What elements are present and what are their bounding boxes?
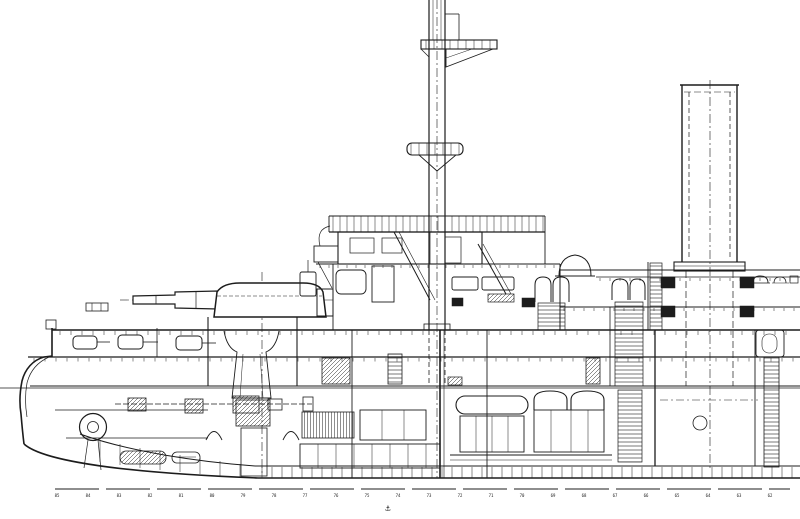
frame-number: 67 bbox=[613, 493, 618, 498]
frame-number: 68 bbox=[582, 493, 587, 498]
blueprint-page: 8584838281807978777675747372717069686766… bbox=[0, 0, 800, 519]
frame-number: 65 bbox=[675, 493, 680, 498]
small-machinery bbox=[448, 377, 462, 385]
coal-scuttle bbox=[661, 277, 675, 288]
frame-number: 66 bbox=[644, 493, 649, 498]
coal-scuttle bbox=[522, 298, 535, 307]
frame-number: 80 bbox=[210, 493, 215, 498]
frame-number: 82 bbox=[148, 493, 153, 498]
frame-number: 62 bbox=[768, 493, 773, 498]
frame-number: 75 bbox=[365, 493, 370, 498]
coal-scuttle bbox=[740, 277, 754, 288]
windlass-gear bbox=[185, 399, 203, 413]
paper-background bbox=[0, 0, 800, 519]
ladder-pedestal bbox=[488, 294, 514, 302]
engine-room-grating bbox=[302, 412, 354, 438]
warship-longitudinal-section-drawing: 8584838281807978777675747372717069686766… bbox=[0, 0, 800, 519]
frame-number: 85 bbox=[55, 493, 60, 498]
frame-number: 69 bbox=[551, 493, 556, 498]
frame-number: 83 bbox=[117, 493, 122, 498]
gun-turret bbox=[214, 283, 326, 317]
coal-scuttle bbox=[740, 306, 754, 317]
frame-number: 71 bbox=[489, 493, 494, 498]
blueprint-figure: 8584838281807978777675747372717069686766… bbox=[0, 0, 800, 519]
frame-number: 72 bbox=[458, 493, 463, 498]
frame-number: 84 bbox=[86, 493, 91, 498]
frame-number: 64 bbox=[706, 493, 711, 498]
escape-ladder bbox=[764, 357, 779, 467]
frame-number: 63 bbox=[737, 493, 742, 498]
anchor-mark: ⚓ bbox=[385, 504, 391, 514]
frame-number: 70 bbox=[520, 493, 525, 498]
bunker-pillar bbox=[586, 358, 600, 384]
frame-number: 77 bbox=[303, 493, 308, 498]
frame-number: 74 bbox=[396, 493, 401, 498]
coal-scuttle bbox=[452, 298, 463, 306]
frame-number: 79 bbox=[241, 493, 246, 498]
frame-number: 73 bbox=[427, 493, 432, 498]
funnel-ladder bbox=[650, 263, 662, 330]
vent-trunk bbox=[615, 302, 643, 386]
frame-number: 78 bbox=[272, 493, 277, 498]
hoist-machinery bbox=[236, 400, 270, 426]
windlass-gear bbox=[128, 398, 146, 411]
frame-number: 76 bbox=[334, 493, 339, 498]
reserve-torpedo bbox=[120, 451, 166, 464]
vertical-ladder bbox=[388, 354, 402, 384]
coal-scuttle bbox=[661, 306, 675, 317]
hatch-coaming bbox=[322, 358, 350, 384]
vent-trunk-lower bbox=[618, 390, 642, 462]
frame-number: 81 bbox=[179, 493, 184, 498]
